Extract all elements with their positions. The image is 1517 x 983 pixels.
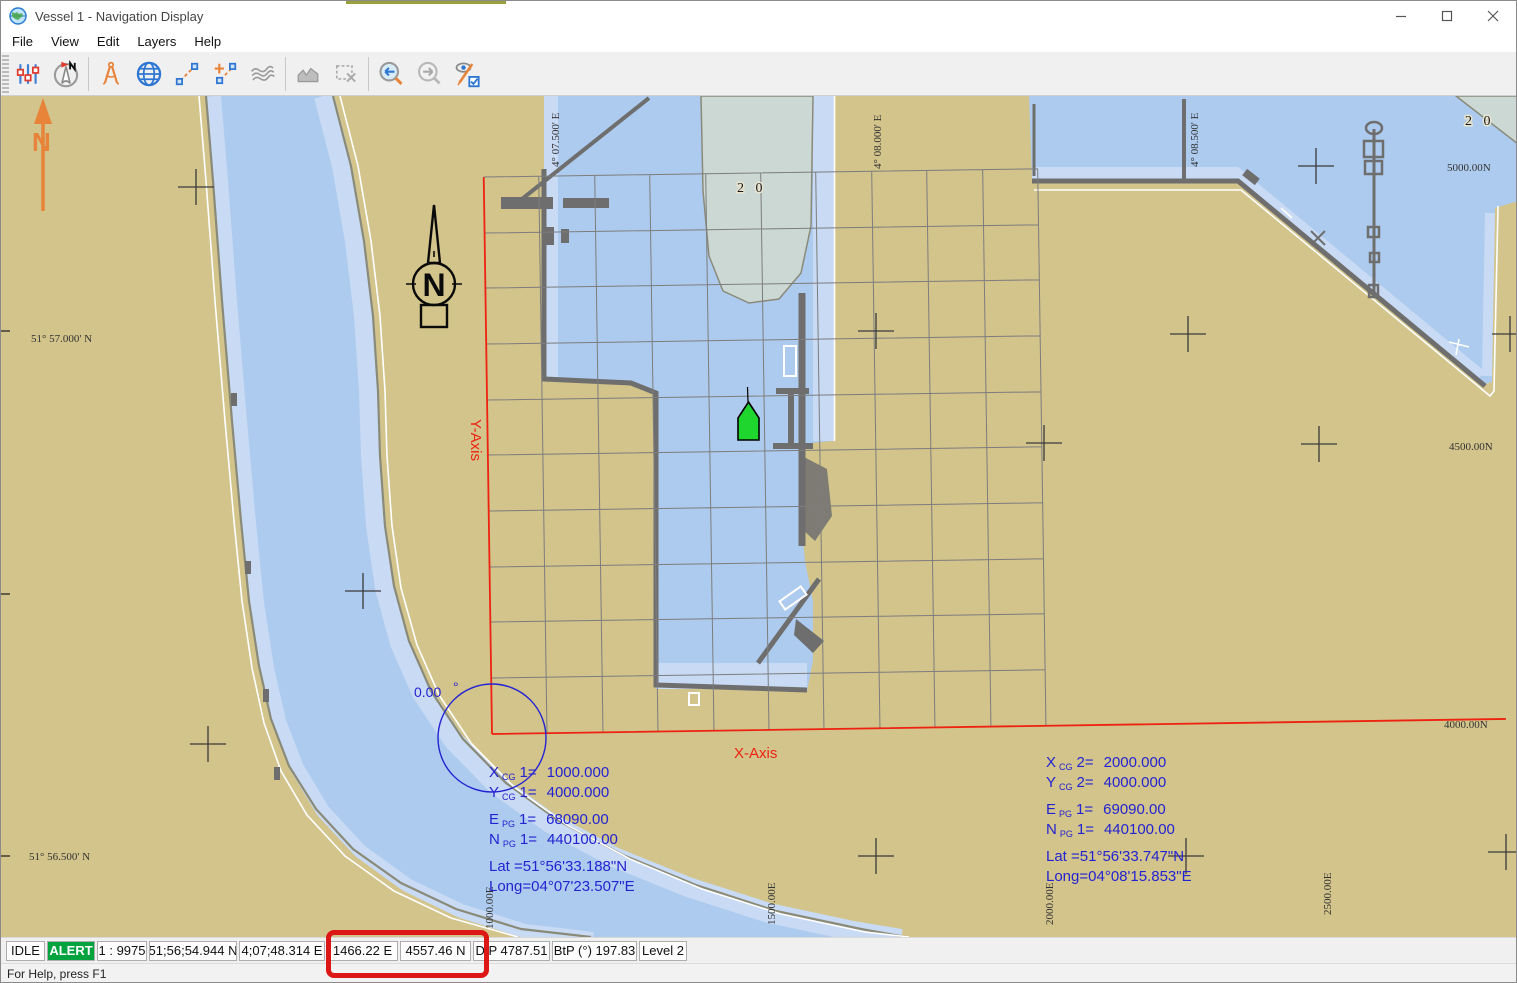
annotation-line: EPG1=68090.00 xyxy=(489,810,635,830)
grid-e-label-2: 1500.00E xyxy=(766,882,778,925)
grid-n-label-3: 4000.00N xyxy=(1444,719,1488,731)
grid-e-label-3: 2000.00E xyxy=(1044,882,1056,925)
zoom-previous-icon[interactable] xyxy=(372,56,410,92)
toolbar-separator xyxy=(368,57,369,91)
annotation-line: Long=04°07'23.507"E xyxy=(489,877,635,897)
menu-edit[interactable]: Edit xyxy=(88,32,128,51)
point1-annotation: XCG1=1000.000 YCG1=4000.000 EPG1=68090.0… xyxy=(489,763,635,897)
menu-help[interactable]: Help xyxy=(185,32,230,51)
lat-label-top: 51° 57.000' N xyxy=(31,333,92,345)
annotation-line: XCG2=2000.000 xyxy=(1046,753,1192,773)
depth-profile-icon xyxy=(289,56,327,92)
title-bar: Vessel 1 - Navigation Display xyxy=(1,1,1516,31)
select-region-icon xyxy=(327,56,365,92)
menu-file[interactable]: File xyxy=(3,32,42,51)
status-bar: IDLE ALERT 1 : 9975 51;56;54.944 N 4;07;… xyxy=(1,937,1516,963)
grid-n-label-2: 4500.00N xyxy=(1449,441,1493,453)
point2-annotation: XCG2=2000.000 YCG2=4000.000 EPG1=69090.0… xyxy=(1046,753,1192,887)
maximize-icon[interactable] xyxy=(1424,1,1470,31)
status-longitude: 4;07;48.314 E xyxy=(239,941,325,961)
menu-bar: File View Edit Layers Help xyxy=(1,31,1516,52)
status-level: Level 2 xyxy=(639,941,687,961)
status-easting: 1466.22 E xyxy=(327,941,398,961)
y-axis-label: Y-Axis xyxy=(467,419,484,461)
help-text: For Help, press F1 xyxy=(7,967,106,981)
close-icon[interactable] xyxy=(1470,1,1516,31)
status-mode: IDLE xyxy=(6,941,45,961)
menu-view[interactable]: View xyxy=(42,32,88,51)
status-dtp: DtP 4787.51 xyxy=(473,941,550,961)
annotation-line: Lat =51°56'33.747"N xyxy=(1046,847,1192,867)
app-window: Vessel 1 - Navigation Display File View … xyxy=(0,0,1517,983)
currents-layer-icon[interactable] xyxy=(244,56,282,92)
x-axis-label: X-Axis xyxy=(734,745,777,762)
status-northing: 4557.46 N xyxy=(400,941,471,961)
status-latitude: 51;56;54.944 N xyxy=(149,941,237,961)
lon-label-2: 4° 08.000' E xyxy=(872,114,884,169)
annotation-line: NPG1=440100.00 xyxy=(489,830,635,850)
annotation-line: YCG2=4000.000 xyxy=(1046,773,1192,793)
annotation-line: YCG1=4000.000 xyxy=(489,783,635,803)
chart-canvas[interactable]: N N 0.00 ° 51° 57.000' N 51° 56.500' N xyxy=(1,96,1517,937)
annotation-line: Long=04°08'15.853"E xyxy=(1046,867,1192,887)
lon-label-1: 4° 07.500' E xyxy=(550,112,562,167)
annotation-line: XCG1=1000.000 xyxy=(489,763,635,783)
grid-n-label-1: 5000.00N xyxy=(1447,162,1491,174)
annotation-line: NPG1=440100.00 xyxy=(1046,820,1192,840)
depth-label-ne: 2 0 xyxy=(1465,114,1495,129)
svg-text:N: N xyxy=(422,267,445,303)
lon-label-3: 4° 08.500' E xyxy=(1189,112,1201,167)
minimize-icon[interactable] xyxy=(1378,1,1424,31)
lat-label-bottom: 51° 56.500' N xyxy=(29,851,90,863)
status-scale: 1 : 9975 xyxy=(97,941,147,961)
globe-projection-icon[interactable] xyxy=(130,56,168,92)
toolbar-gripper[interactable] xyxy=(2,55,9,93)
svg-text:N: N xyxy=(32,127,51,157)
menu-layers[interactable]: Layers xyxy=(128,32,185,51)
toolbar-separator xyxy=(285,57,286,91)
window-title: Vessel 1 - Navigation Display xyxy=(35,9,203,24)
north-compass-icon[interactable] xyxy=(47,56,85,92)
toolbar-separator xyxy=(88,57,89,91)
depth-label-mid: 2 0 xyxy=(737,181,767,196)
measure-line-icon[interactable] xyxy=(168,56,206,92)
heading-value: 0.00 xyxy=(414,684,441,700)
add-waypoint-icon[interactable] xyxy=(206,56,244,92)
help-bar: For Help, press F1 xyxy=(1,963,1516,983)
dividers-measure-icon[interactable] xyxy=(92,56,130,92)
status-alert-badge: ALERT xyxy=(47,941,95,961)
annotation-line: Lat =51°56'33.188"N xyxy=(489,857,635,877)
chart-area[interactable]: N N 0.00 ° 51° 57.000' N 51° 56.500' N xyxy=(1,96,1517,937)
grid-e-label-4: 2500.00E xyxy=(1322,872,1334,915)
display-settings-icon[interactable] xyxy=(9,56,47,92)
annotation-line: EPG1=69090.00 xyxy=(1046,800,1192,820)
heading-unit: ° xyxy=(453,679,459,695)
status-btp: BtP (°) 197.83 xyxy=(552,941,637,961)
zoom-next-icon xyxy=(410,56,448,92)
globe-icon xyxy=(9,7,27,25)
toolbar xyxy=(1,52,1516,96)
view-options-icon[interactable] xyxy=(448,56,486,92)
background-window-sliver xyxy=(346,1,506,4)
